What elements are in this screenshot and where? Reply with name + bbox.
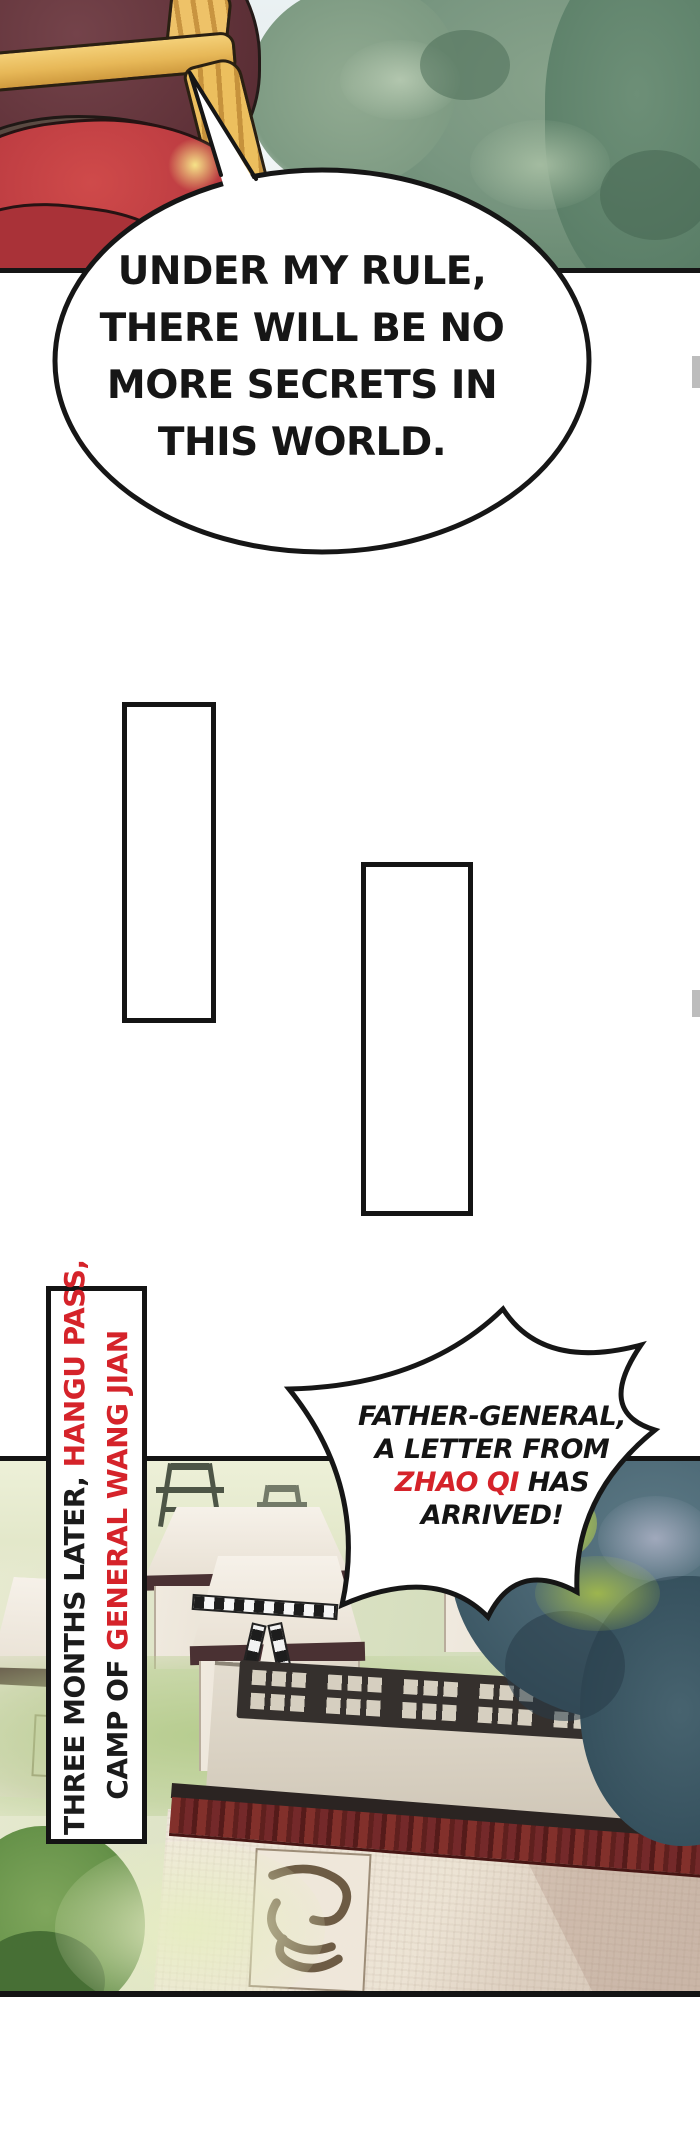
- empty-panel-frame-1: [122, 702, 216, 1023]
- speech-line: THERE WILL BE NO: [72, 300, 532, 357]
- comic-page: UNDER MY RULE, THERE WILL BE NO MORE SEC…: [0, 0, 700, 2151]
- caption-text: THREE MONTHS LATER,: [58, 1467, 91, 1835]
- shout-line: A LETTER FROM: [292, 1433, 692, 1466]
- shout-text: HAS: [519, 1467, 589, 1498]
- caption-text-red: GENERAL WANG JIAN: [101, 1330, 134, 1650]
- scene-caption-box: THREE MONTHS LATER, HANGU PASS, CAMP OF …: [46, 1286, 147, 1844]
- shout-text-red: ZHAO QI: [395, 1467, 519, 1498]
- speech-bubble-text: UNDER MY RULE, THERE WILL BE NO MORE SEC…: [72, 243, 532, 471]
- caption-text-red: HANGU PASS,: [58, 1259, 91, 1467]
- empty-panel-frame-2: [361, 862, 473, 1216]
- shout-bubble-text: FATHER-GENERAL, A LETTER FROM ZHAO QI HA…: [292, 1400, 692, 1532]
- shout-line: ARRIVED!: [292, 1499, 692, 1532]
- page-edge-tab: [692, 356, 700, 388]
- caption-rotated-text: THREE MONTHS LATER, HANGU PASS, CAMP OF …: [53, 1295, 141, 1835]
- caption-text: CAMP OF: [101, 1651, 134, 1800]
- speech-line: UNDER MY RULE,: [72, 243, 532, 300]
- page-edge-tab: [692, 990, 700, 1017]
- shout-line: FATHER-GENERAL,: [292, 1400, 692, 1433]
- caption-line-1: THREE MONTHS LATER, HANGU PASS,: [53, 1295, 96, 1835]
- shout-line: ZHAO QI HAS: [292, 1466, 692, 1499]
- speech-line: MORE SECRETS IN: [72, 357, 532, 414]
- caption-line-2: CAMP OF GENERAL WANG JIAN: [96, 1295, 139, 1835]
- speech-line: THIS WORLD.: [72, 414, 532, 471]
